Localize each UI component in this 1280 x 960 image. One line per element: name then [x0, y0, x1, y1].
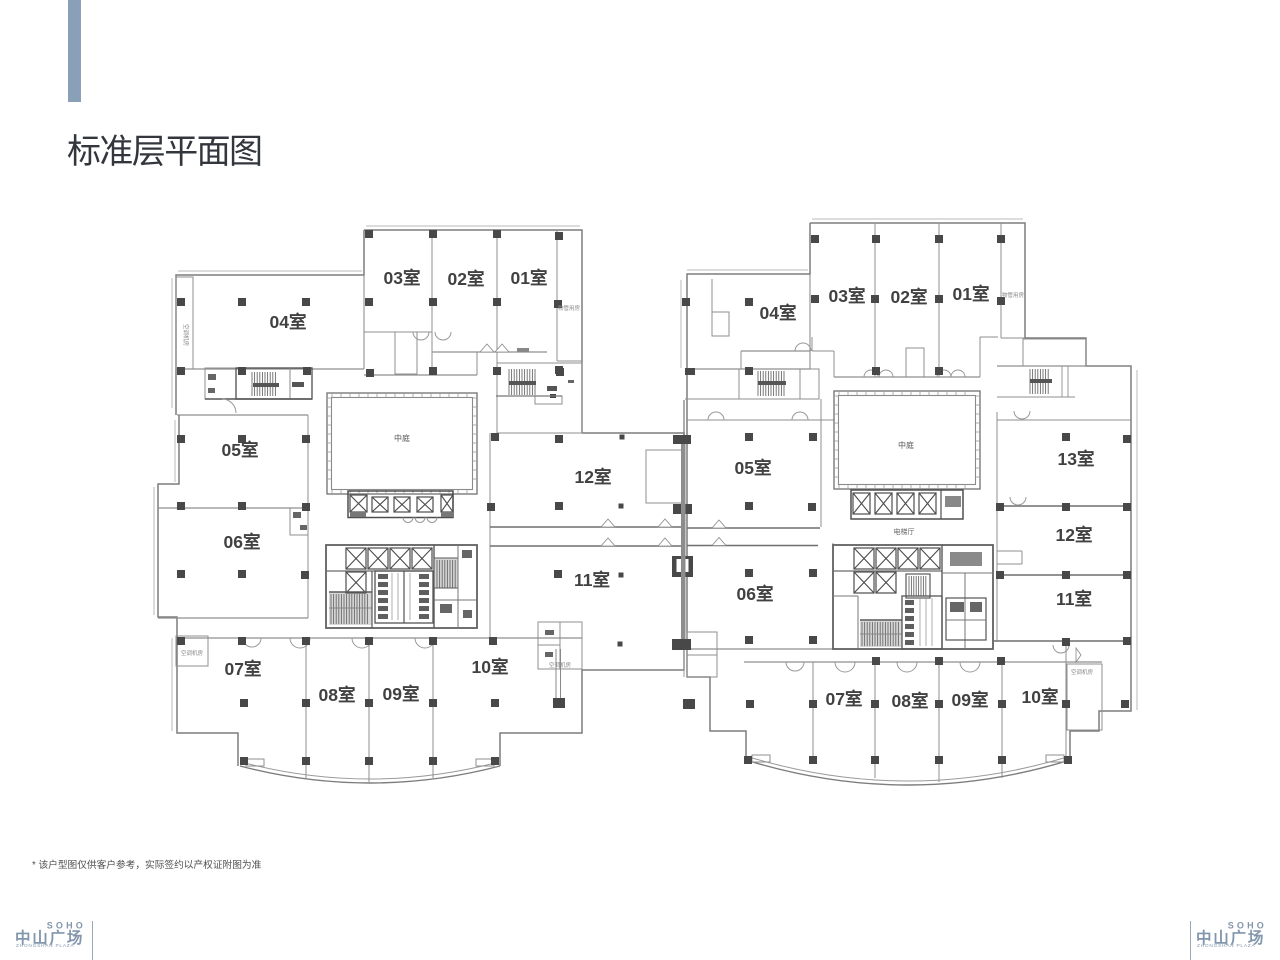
svg-text:电梯厅: 电梯厅	[894, 527, 915, 536]
svg-text:05室: 05室	[735, 458, 772, 478]
svg-text:03室: 03室	[829, 286, 866, 306]
svg-text:08室: 08室	[319, 685, 356, 705]
svg-text:物管用房: 物管用房	[558, 304, 581, 312]
svg-text:04室: 04室	[760, 303, 797, 323]
svg-text:08室: 08室	[892, 691, 929, 711]
svg-text:11室: 11室	[574, 570, 610, 590]
svg-text:ZHONGSHAN PLAZA: ZHONGSHAN PLAZA	[1197, 943, 1255, 949]
svg-text:中庭: 中庭	[394, 433, 410, 443]
svg-text:10室: 10室	[1022, 687, 1059, 707]
svg-text:11室: 11室	[1056, 589, 1092, 609]
svg-text:中庭: 中庭	[898, 440, 914, 450]
svg-text:09室: 09室	[952, 690, 989, 710]
svg-text:02室: 02室	[448, 269, 485, 289]
svg-text:空调机房: 空调机房	[1071, 668, 1094, 676]
svg-text:07室: 07室	[826, 689, 863, 709]
svg-text:空调机房: 空调机房	[181, 649, 204, 657]
svg-text:01室: 01室	[953, 284, 990, 304]
svg-text:09室: 09室	[383, 684, 420, 704]
svg-text:03室: 03室	[384, 268, 421, 288]
svg-text:04室: 04室	[270, 312, 307, 332]
svg-text:空调机房: 空调机房	[549, 661, 572, 669]
svg-text:05室: 05室	[222, 440, 259, 460]
svg-text:13室: 13室	[1058, 449, 1095, 469]
svg-text:空调机房: 空调机房	[182, 324, 190, 347]
svg-text:06室: 06室	[737, 584, 774, 604]
svg-text:SOHO: SOHO	[1228, 921, 1267, 931]
svg-text:10室: 10室	[472, 657, 509, 677]
svg-text:07室: 07室	[225, 659, 262, 679]
svg-text:12室: 12室	[1056, 525, 1093, 545]
svg-text:06室: 06室	[224, 532, 261, 552]
svg-text:12室: 12室	[575, 467, 612, 487]
svg-text:SOHO: SOHO	[47, 921, 86, 931]
svg-text:01室: 01室	[511, 268, 548, 288]
svg-text:02室: 02室	[891, 287, 928, 307]
svg-text:ZHONGSHAN PLAZA: ZHONGSHAN PLAZA	[16, 943, 74, 949]
svg-text:物管用房: 物管用房	[1002, 291, 1025, 299]
